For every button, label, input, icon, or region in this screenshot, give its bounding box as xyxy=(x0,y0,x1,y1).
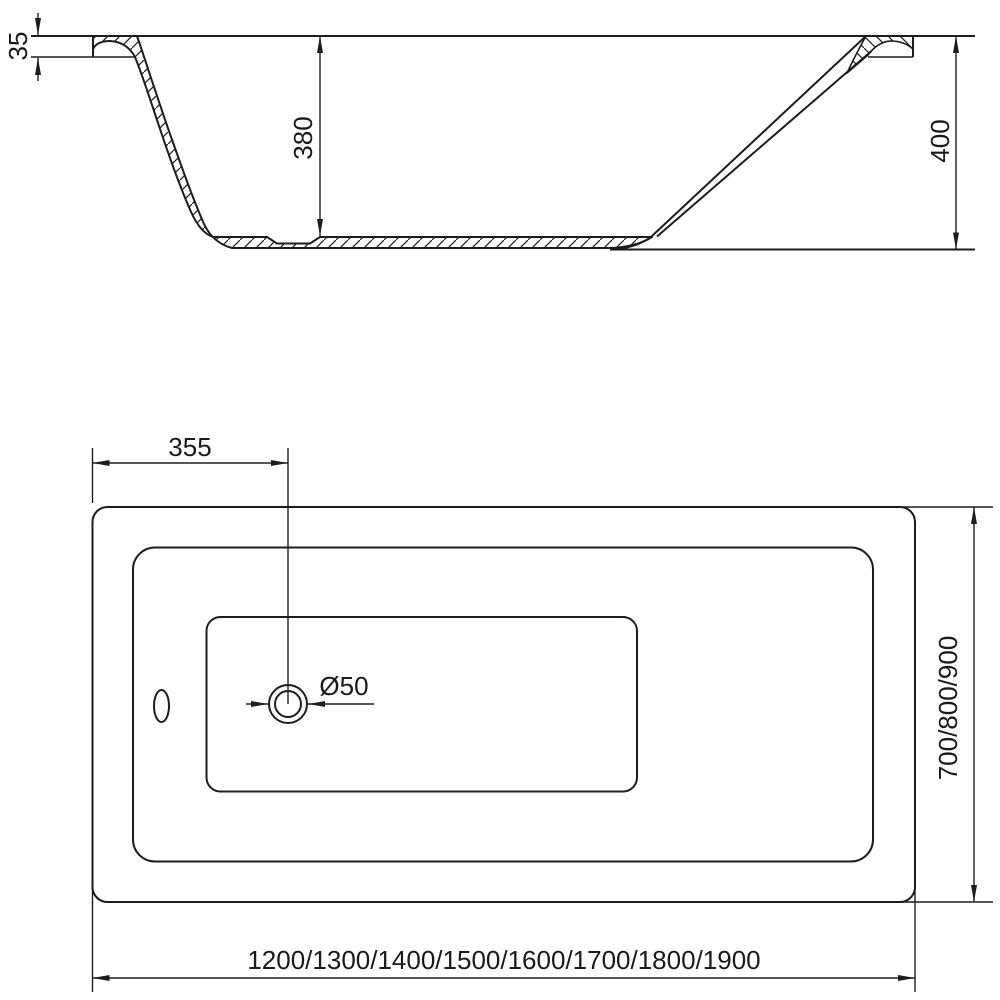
overflow-hole xyxy=(154,690,169,722)
dim-width-label: 700/800/900 xyxy=(933,636,963,781)
plan-outer-rim-rect xyxy=(93,507,916,902)
section-tub-shell-hatched xyxy=(93,36,652,248)
section-right-rim-hatched xyxy=(847,36,913,73)
section-backrest-outer-line xyxy=(618,36,866,249)
technical-drawing-page: 35 380 400 355 xyxy=(0,0,1000,1000)
plan-floor-rect xyxy=(207,617,638,792)
plan-inner-rim-rect xyxy=(133,548,873,862)
section-view: 35 380 400 xyxy=(3,13,975,250)
plan-view: 355 Ø50 700/800/900 1200/1300/1400/1500/… xyxy=(93,432,994,992)
dim-rim-height: 35 xyxy=(3,13,38,81)
section-backrest-inner-line xyxy=(657,51,872,237)
dim-drain-offset: 355 xyxy=(93,432,289,503)
dim-drain-offset-label: 355 xyxy=(168,432,211,462)
dim-length-label: 1200/1300/1400/1500/1600/1700/1800/1900 xyxy=(247,945,760,975)
dim-inner-depth: 380 xyxy=(288,36,320,236)
bathtub-dimension-drawing: 35 380 400 355 xyxy=(0,0,1000,1000)
dim-drain-diameter: Ø50 xyxy=(246,671,374,704)
dim-drain-diameter-label: Ø50 xyxy=(319,671,368,701)
dim-total-height: 400 xyxy=(925,36,956,250)
dim-inner-depth-label: 380 xyxy=(288,116,318,159)
dim-rim-height-label: 35 xyxy=(3,32,33,61)
dim-total-height-label: 400 xyxy=(925,119,955,162)
